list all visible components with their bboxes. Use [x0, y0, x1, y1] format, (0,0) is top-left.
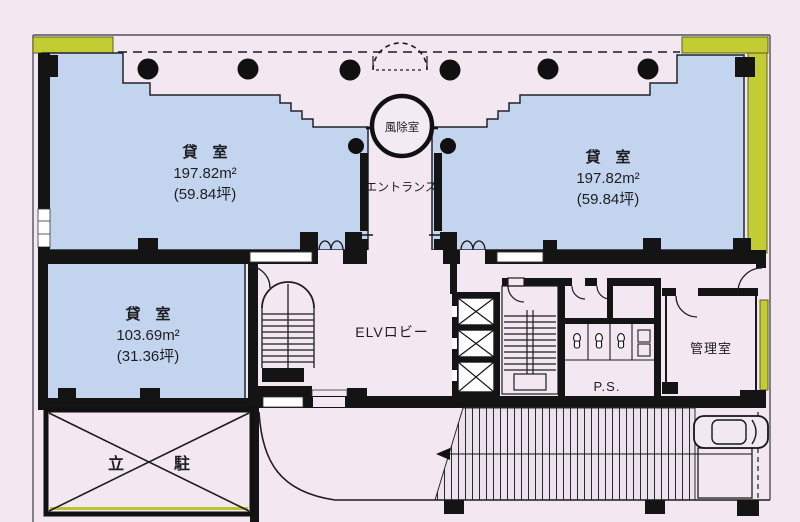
column-icon — [340, 60, 361, 81]
corner-pillar — [40, 55, 58, 77]
windbreak-room-label: 風除室 — [385, 120, 420, 134]
room-nw-label: 貸 室 — [182, 143, 227, 161]
room-sw-tsubo: (31.36坪) — [117, 348, 180, 365]
room-ne-tsubo: (59.84坪) — [577, 191, 640, 208]
floor-plan-drawing: 貸 室 197.82m² (59.84坪) 貸 室 197.82m² (59.8… — [0, 0, 800, 522]
corner-pillar — [735, 57, 755, 77]
room-ne-area: 197.82m² — [576, 170, 639, 187]
room-ne-label: 貸 室 — [585, 148, 630, 166]
pipe-space-label: P.S. — [594, 379, 621, 394]
column-icon — [638, 59, 659, 80]
column-icon — [440, 138, 456, 154]
column-icon — [538, 59, 559, 80]
entrance-label: エントランス — [365, 180, 437, 194]
elevator-lobby-label: ELVロビー — [355, 324, 428, 340]
room-sw-label: 貸 室 — [125, 305, 170, 323]
floor-plan-page: 貸 室 197.82m² (59.84坪) 貸 室 197.82m² (59.8… — [0, 0, 800, 522]
toilet-icon — [574, 334, 581, 348]
manager-room-label: 管理室 — [690, 341, 732, 356]
window — [497, 252, 543, 262]
balcony-top-right — [682, 37, 768, 53]
parking-tower-label-right: 駐 — [174, 454, 190, 473]
room-nw-tsubo: (59.84坪) — [174, 186, 237, 203]
balcony-manager-right — [760, 300, 768, 390]
column-icon — [238, 59, 259, 80]
parking-tower-green-line — [50, 507, 248, 510]
parking-tower-label-left: 立 — [108, 454, 124, 473]
column-icon — [138, 59, 159, 80]
window — [263, 397, 303, 407]
balcony-top-left — [33, 37, 113, 53]
room-sw-area: 103.69m² — [116, 327, 179, 344]
room-nw-area: 197.82m² — [173, 165, 236, 182]
column-icon — [440, 60, 461, 81]
toilet-icon — [596, 334, 603, 348]
column-icon — [348, 138, 364, 154]
toilet-icon — [618, 334, 625, 348]
window — [250, 252, 312, 262]
balcony-right — [748, 53, 767, 253]
car-icon — [694, 416, 768, 448]
